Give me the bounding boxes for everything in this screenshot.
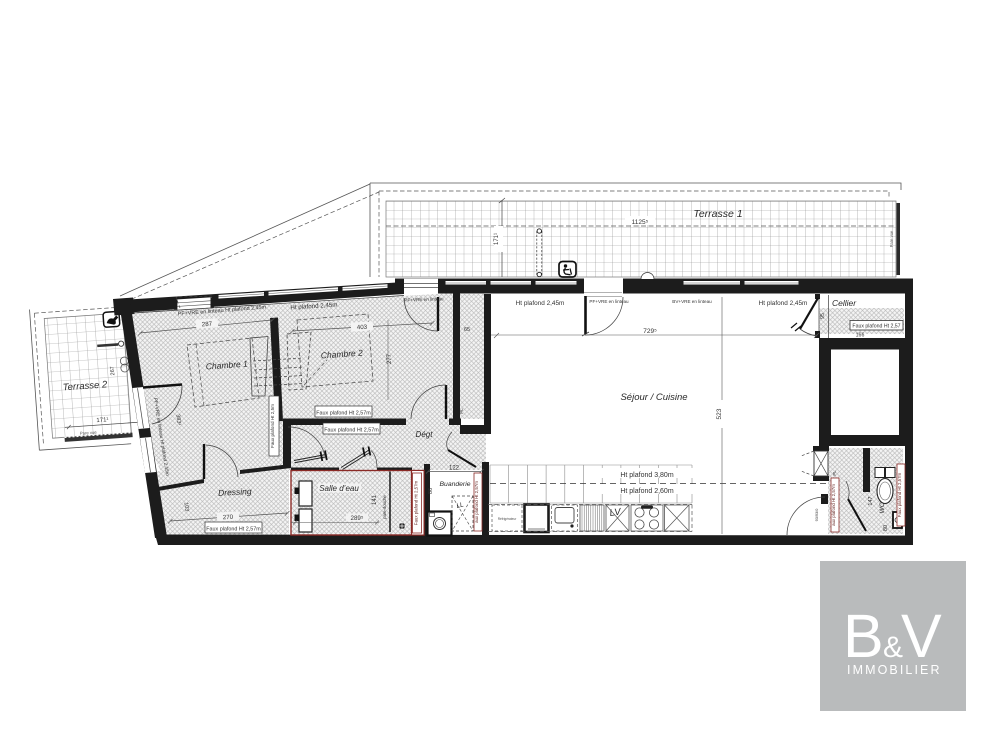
svg-text:86: 86: [428, 488, 434, 494]
svg-text:Terrasse 1: Terrasse 1: [693, 208, 742, 220]
svg-text:V: V: [901, 602, 942, 670]
svg-text:1125⁵: 1125⁵: [632, 219, 649, 226]
svg-text:Faux plafond Ht 2,57m: Faux plafond Ht 2,57m: [897, 472, 902, 517]
svg-text:166: 166: [856, 333, 865, 339]
svg-text:Réfrigérateur: Réfrigérateur: [498, 517, 518, 521]
svg-text:Ht plafond 2,45m: Ht plafond 2,45m: [759, 300, 808, 307]
svg-text:403: 403: [357, 324, 368, 332]
svg-text:287: 287: [202, 321, 213, 329]
svg-text:171¹: 171¹: [494, 233, 500, 245]
svg-text:80: 80: [883, 525, 889, 531]
svg-text:Ht plafond 3,80m: Ht plafond 3,80m: [620, 472, 673, 479]
svg-text:PL: PL: [459, 408, 464, 414]
svg-text:Faux plafond Ht 2,57m: Faux plafond Ht 2,57m: [324, 428, 379, 434]
svg-text:729⁵: 729⁵: [643, 328, 657, 335]
svg-text:B: B: [843, 602, 884, 670]
svg-text:523: 523: [716, 408, 723, 419]
svg-text:Faux plafond Ht 2,57m: Faux plafond Ht 2,57m: [316, 411, 371, 417]
svg-text:Faux plafond Ht 2,57: Faux plafond Ht 2,57: [852, 324, 900, 330]
svg-text:289⁵: 289⁵: [351, 515, 364, 522]
svg-text:147: 147: [868, 496, 874, 505]
svg-text:171¹: 171¹: [96, 417, 108, 424]
svg-text:93/93/0: 93/93/0: [815, 509, 819, 522]
svg-text:IMMOBILIER: IMMOBILIER: [847, 663, 942, 677]
svg-text:267: 267: [110, 366, 117, 376]
svg-text:Faux plafond Ht 2,57m: Faux plafond Ht 2,57m: [414, 480, 419, 525]
svg-text:Cellier: Cellier: [832, 298, 857, 308]
svg-text:270: 270: [223, 514, 234, 522]
svg-text:aux plafond Ht 2,57m: aux plafond Ht 2,57m: [831, 484, 836, 526]
svg-text:Dressing: Dressing: [218, 486, 252, 498]
svg-text:PL: PL: [832, 470, 837, 476]
svg-text:BV+VRE en linteau: BV+VRE en linteau: [672, 299, 712, 304]
svg-text:122: 122: [449, 466, 460, 472]
svg-text:Salle d’eau: Salle d’eau: [319, 484, 359, 493]
svg-text:Buanderie: Buanderie: [440, 481, 471, 488]
svg-text:Faux plafond Ht 2,57m: Faux plafond Ht 2,57m: [206, 527, 261, 533]
svg-text:141: 141: [372, 494, 378, 505]
svg-text:pare-douche: pare-douche: [382, 495, 387, 519]
svg-text:PF+VRE en linteau: PF+VRE en linteau: [589, 299, 629, 304]
svg-text:Dégt: Dégt: [416, 430, 434, 439]
svg-text:Séjour / Cuisine: Séjour / Cuisine: [620, 392, 687, 403]
svg-text:95: 95: [820, 313, 826, 319]
svg-text:&: &: [883, 631, 903, 664]
svg-text:103: 103: [182, 502, 189, 512]
svg-text:aux plafond Ht 2,57m: aux plafond Ht 2,57m: [474, 481, 479, 523]
svg-text:Ht plafond 2,45m: Ht plafond 2,45m: [516, 300, 565, 307]
svg-text:65: 65: [464, 327, 470, 333]
svg-text:Faux plafond Ht 2,5m: Faux plafond Ht 2,5m: [270, 404, 275, 448]
svg-text:277: 277: [387, 353, 393, 364]
svg-text:Pare vue: Pare vue: [889, 230, 894, 247]
svg-text:Ht plafond 2,60m: Ht plafond 2,60m: [620, 488, 673, 495]
